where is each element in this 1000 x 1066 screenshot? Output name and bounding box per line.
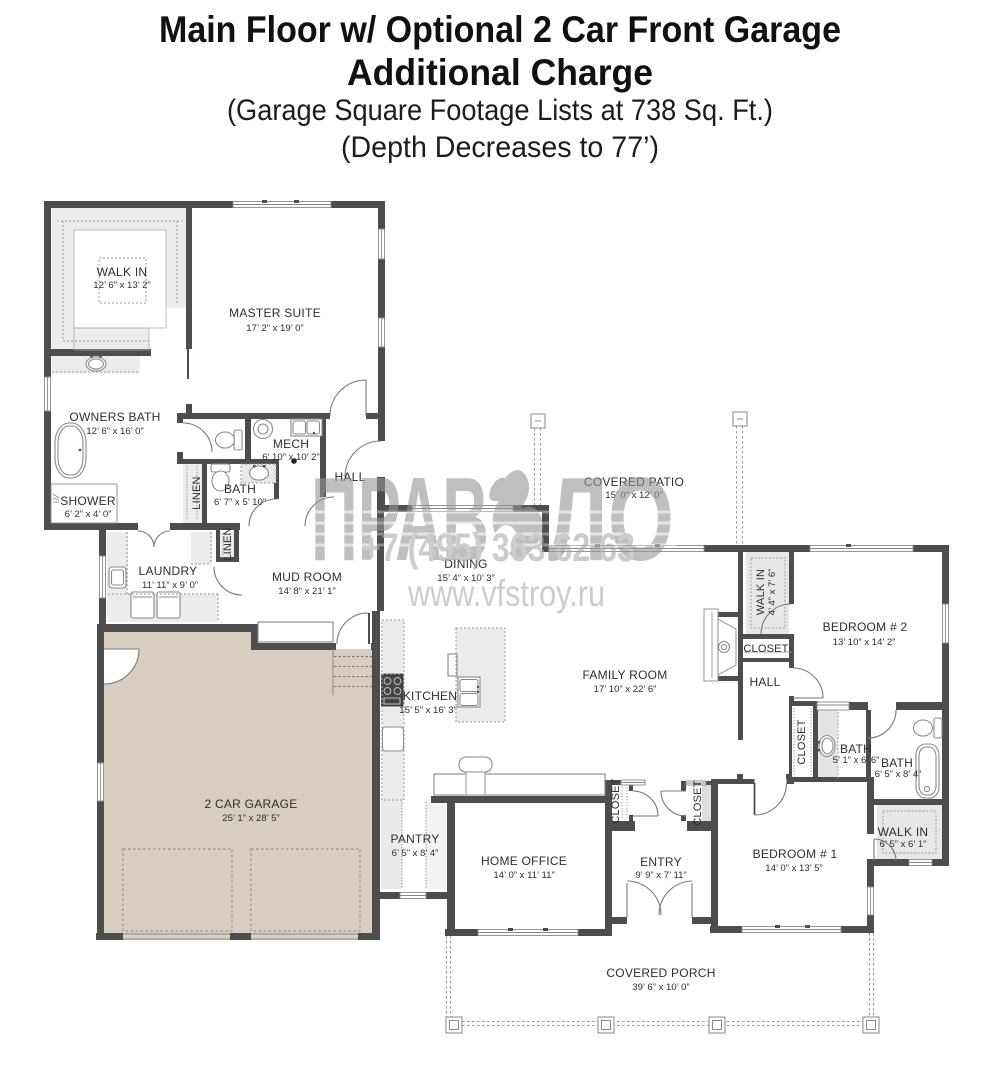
svg-text:14’ 8” x 21’ 1”: 14’ 8” x 21’ 1” (278, 586, 335, 597)
svg-text:6’ 5” x 6’ 1”: 6’ 5” x 6’ 1” (880, 839, 927, 850)
svg-text:14’ 0” x 13’ 5”: 14’ 0” x 13’ 5” (765, 863, 822, 874)
svg-text:4’ 4” x 7’ 6”: 4’ 4” x 7’ 6” (767, 569, 778, 616)
svg-text:MASTER SUITE: MASTER SUITE (229, 306, 321, 320)
svg-text:(Garage Square Footage Lists a: (Garage Square Footage Lists at 738 Sq. … (227, 94, 773, 127)
svg-text:+7 (495) 363 62 63: +7 (495) 363 62 63 (362, 526, 635, 570)
svg-text:BATH: BATH (881, 756, 913, 770)
svg-text:HOME OFFICE: HOME OFFICE (481, 854, 567, 868)
svg-text:6’ 5” x 8’ 4”: 6’ 5” x 8’ 4” (392, 848, 439, 859)
svg-text:(Depth Decreases to 77’): (Depth Decreases to 77’) (341, 131, 659, 164)
svg-text:12’ 6” x 16’ 0”: 12’ 6” x 16’ 0” (86, 426, 143, 437)
svg-text:39’ 6” x 10’ 0”: 39’ 6” x 10’ 0” (632, 982, 689, 993)
svg-text:LINEN: LINEN (222, 527, 234, 560)
svg-text:FAMILY ROOM: FAMILY ROOM (583, 668, 668, 682)
svg-text:14’ 0” x 11’ 11”: 14’ 0” x 11’ 11” (493, 870, 554, 881)
svg-text:KITCHEN: KITCHEN (403, 689, 457, 703)
svg-text:11’ 11” x 9’ 0”: 11’ 11” x 9’ 0” (142, 580, 198, 591)
svg-text:MECH: MECH (273, 437, 309, 451)
svg-text:15’ 5” x 16’ 3”: 15’ 5” x 16’ 3” (399, 705, 456, 716)
svg-text:COVERED PORCH: COVERED PORCH (606, 966, 715, 980)
svg-text:CLOSET: CLOSET (610, 778, 622, 823)
svg-text:WALK IN: WALK IN (755, 569, 767, 615)
svg-text:BATH: BATH (224, 482, 256, 496)
svg-text:Main Floor w/ Optional 2 Car F: Main Floor w/ Optional 2 Car Front Garag… (159, 9, 841, 50)
svg-text:6’ 5” x 8’ 4”: 6’ 5” x 8’ 4” (875, 769, 922, 780)
svg-text:CLOSET: CLOSET (692, 780, 704, 825)
svg-text:17’ 10” x 22’ 6”: 17’ 10” x 22’ 6” (594, 684, 657, 695)
svg-text:6’ 7” x 5’ 10”: 6’ 7” x 5’ 10” (214, 497, 266, 508)
svg-text:WALK IN: WALK IN (97, 265, 148, 279)
svg-text:25’ 1” x 28’ 5”: 25’ 1” x 28’ 5” (222, 813, 279, 824)
svg-text:17’ 2” x 19’ 0”: 17’ 2” x 19’ 0” (246, 323, 303, 334)
svg-text:OWNERS BATH: OWNERS BATH (69, 410, 160, 424)
svg-text:www.vfstroy.ru: www.vfstroy.ru (407, 573, 605, 614)
svg-text:2 CAR GARAGE: 2 CAR GARAGE (204, 797, 297, 811)
svg-text:12’ 6” x 13’ 2”: 12’ 6” x 13’ 2” (93, 280, 150, 291)
svg-text:ENTRY: ENTRY (640, 855, 682, 869)
svg-text:CLOSET: CLOSET (743, 643, 788, 655)
svg-text:6’ 2” x 4’ 0”: 6’ 2” x 4’ 0” (65, 509, 112, 520)
svg-text:PANTRY: PANTRY (390, 832, 439, 846)
svg-text:BEDROOM # 2: BEDROOM # 2 (823, 620, 908, 634)
svg-text:WALK IN: WALK IN (878, 825, 929, 839)
svg-text:Additional Charge: Additional Charge (347, 52, 653, 93)
svg-text:9’ 9” x 7’ 11”: 9’ 9” x 7’ 11” (635, 870, 686, 881)
svg-text:5’ 1” x 6’ 6”: 5’ 1” x 6’ 6” (833, 755, 880, 766)
svg-text:BATH: BATH (840, 742, 872, 756)
svg-text:LAUNDRY: LAUNDRY (139, 564, 198, 578)
svg-text:SHOWER: SHOWER (60, 494, 116, 508)
svg-text:13’ 10” x 14’ 2”: 13’ 10” x 14’ 2” (833, 637, 896, 648)
svg-text:BEDROOM # 1: BEDROOM # 1 (753, 847, 838, 861)
svg-text:HALL: HALL (749, 675, 780, 689)
svg-text:CLOSET: CLOSET (796, 719, 808, 764)
svg-text:LINEN: LINEN (191, 476, 203, 509)
